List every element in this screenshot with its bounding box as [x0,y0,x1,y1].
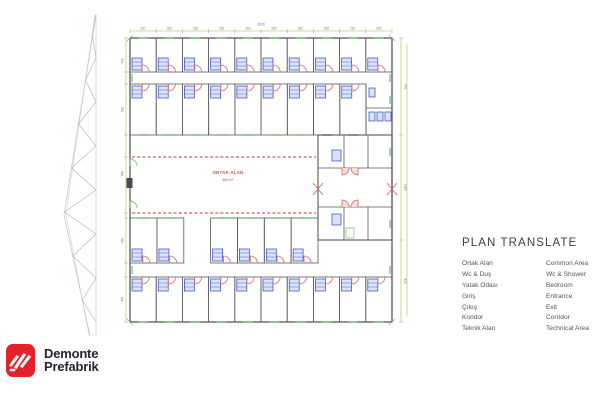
wc-pod [342,58,352,70]
door-arc [195,84,202,91]
wc-pod [368,279,378,291]
center-hall-block [313,135,397,240]
legend-table: Ortak AlanCommon AreaWc & DuşWc & Shower… [462,258,594,334]
door-arc [304,256,311,263]
dim-label: 262 [298,26,304,30]
wc-pod [159,249,169,261]
legend-term-english: Corridor [546,314,594,321]
door-arc [195,277,202,284]
door-arc [168,65,175,72]
dim-label: 970 [403,84,407,90]
legend-term-turkish: Yatak Odası [462,282,546,289]
truss-drawing [64,14,96,336]
dim-label: 450 [121,297,125,303]
door-arc [195,65,202,72]
wc-pod [158,279,168,291]
wc-pod [315,58,325,70]
truss-left-chord [64,14,96,336]
double-door-top [342,168,358,175]
center-block-outline [318,135,392,240]
door-arc [378,65,385,72]
door-arc [247,84,254,91]
room-row [130,218,318,263]
door-arc [247,277,254,284]
dimension-chain-right: 9701050820 [399,38,407,322]
door-arc [221,277,228,284]
drawing-sheet: ORTAK ALAN480 m²262262262262262262262262… [0,0,600,400]
door-arc [247,65,254,72]
door-arc [326,84,333,91]
legend-term-turkish: Giriş [462,293,546,300]
door-arc [142,65,149,72]
dim-label: 262 [376,26,382,30]
wc-pod [184,279,194,291]
truss-bracing [65,14,97,322]
wc-pod [211,58,221,70]
technical-area-mark [346,228,354,238]
entrance-door-swing [130,201,137,208]
legend-row: ÇıkışExit [462,302,594,313]
entrance-mark [127,178,133,188]
wc-pod [316,86,326,98]
wc-pod [237,279,247,291]
wc-pod [237,86,247,98]
entrance-door-swing [130,159,137,166]
door-arc [352,84,359,91]
wc-pod [342,279,352,291]
wc-pod [293,249,303,261]
door-arc [168,84,175,91]
logo-text: Demonte Prefabrik [44,348,99,373]
wc-pod [132,279,142,291]
wc-cluster [366,84,392,135]
center-block-walls [318,135,392,240]
legend-row: Wc & DuşWc & Shower [462,269,594,280]
demonte-logo-icon [6,344,35,377]
floor-plan: ORTAK ALAN480 m² [127,35,398,325]
toilet-fixture [385,112,391,121]
common-area-label: ORTAK ALAN [213,170,244,175]
dim-label: 262 [245,26,251,30]
legend-title: PLAN TRANSLATE [462,237,594,249]
door-arc [143,256,150,263]
toilet-fixture [377,112,383,121]
door-arc [299,277,306,284]
door-arc [326,277,333,284]
wc-pod [239,249,249,261]
door-arc [378,277,385,284]
door-arc [221,65,228,72]
door-arc [142,84,149,91]
dim-label: 262 [193,26,199,30]
legend-term-english: Exit [546,304,594,311]
wc-pod [315,279,325,291]
door-arc [168,277,175,284]
wc-pod [289,279,299,291]
wc-pod [289,58,299,70]
wc-pod [211,279,221,291]
logo-line2: Prefabrik [44,361,99,374]
plan-translate-legend: PLAN TRANSLATE Ortak AlanCommon AreaWc &… [462,237,594,334]
door-arc [142,277,149,284]
dim-label: 262 [350,26,356,30]
wc-pod [342,86,352,98]
legend-row: Yatak OdasıBedroom [462,280,594,291]
dim-label: 262 [140,26,146,30]
room-row [130,84,366,135]
door-arc [299,65,306,72]
legend-term-english: Bedroom [546,282,594,289]
door-arc [352,277,359,284]
common-area-boundary [132,157,316,213]
wc-pod [368,58,378,70]
door-arc [223,256,230,263]
wc-pod [158,58,168,70]
legend-term-english: Entrance [546,293,594,300]
legend-row: Teknik AlanTechnical Area [462,323,594,334]
door-arc [250,256,257,263]
wc-pod [332,214,341,225]
common-area-size: 480 m² [222,178,234,182]
room-row [130,38,392,72]
door-arc [277,256,284,263]
wc-pod [158,86,168,98]
legend-term-english: Technical Area [546,325,594,332]
wc-pod [132,249,142,261]
dim-label: 1050 [403,184,407,191]
wc-pod [263,86,273,98]
company-logo: Demonte Prefabrik [6,344,99,377]
legend-term-turkish: Teknik Alan [462,325,546,332]
wc-pod [211,86,221,98]
legend-row: Ortak AlanCommon Area [462,258,594,269]
dim-label: 262 [219,26,225,30]
toilet-fixture [369,112,375,121]
door-arc [273,84,280,91]
legend-term-turkish: Koridor [462,314,546,321]
legend-row: GirişEntrance [462,291,594,302]
dim-label: 450 [121,238,125,244]
wc-pod [213,249,223,261]
legend-term-english: Common Area [546,260,594,267]
dim-label: 262 [271,26,277,30]
legend-term-turkish: Çıkış [462,304,546,311]
dim-label: 262 [324,26,330,30]
dim-total-label: 2620 [257,23,265,27]
wc-pod [266,249,276,261]
dim-label: 510 [121,107,125,113]
wc-pod [332,150,341,161]
wc-pod [263,58,273,70]
dim-label: 780 [121,171,125,177]
toilet-fixture [369,88,375,97]
legend-term-turkish: Wc & Duş [462,271,546,278]
wc-pod [184,86,194,98]
door-arc [352,65,359,72]
dim-label: 820 [403,278,407,284]
wc-pod [184,58,194,70]
wc-pod [289,86,299,98]
dimension-chain-top: 2622622622622622622622622622622620 [130,23,392,34]
wc-pod [132,86,142,98]
door-arc [170,256,177,263]
room-row [130,277,392,322]
dim-label: 262 [167,26,173,30]
wc-pod [132,58,142,70]
floor-plan-drawing: ORTAK ALAN480 m²262262262262262262262262… [0,0,600,400]
door-arc [326,65,333,72]
legend-term-english: Wc & Shower [546,271,594,278]
wc-pod [237,58,247,70]
double-door-bottom [342,200,358,207]
door-arc [273,65,280,72]
door-arc [273,277,280,284]
door-arc [300,84,307,91]
door-arc [221,84,228,91]
wc-pod [263,279,273,291]
legend-row: KoridorCorridor [462,312,594,323]
logo-mark-glyph [6,344,35,377]
legend-term-turkish: Ortak Alan [462,260,546,267]
dim-label: 340 [121,58,125,64]
